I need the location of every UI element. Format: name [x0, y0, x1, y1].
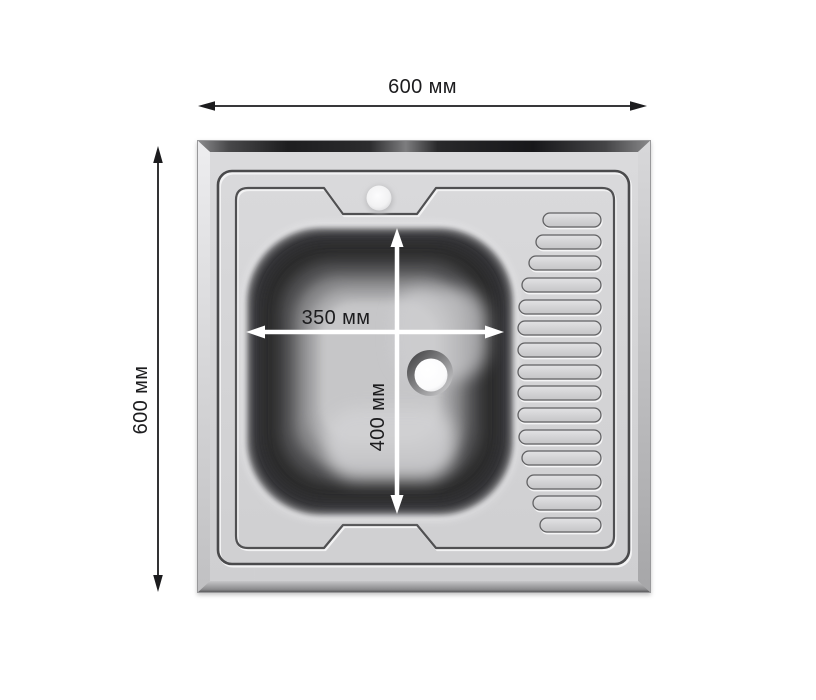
top-bevel-edge [197, 140, 651, 152]
drainboard-slat [527, 475, 602, 491]
left-bevel-edge [197, 140, 210, 593]
drainboard-slat [536, 235, 602, 251]
drainboard-slat [518, 408, 602, 424]
arrowhead-right-icon [630, 101, 647, 111]
drainboard-slat [518, 321, 602, 337]
drainboard-slat [543, 213, 602, 229]
drainboard-slat [518, 343, 602, 359]
overall-width-label: 600 мм [197, 76, 648, 99]
drainboard-slat [519, 430, 602, 446]
right-bevel-edge [638, 140, 651, 593]
drainboard-slat [522, 278, 602, 294]
sink-illustration: 350 мм 400 мм [197, 140, 651, 593]
drainboard-slat [529, 256, 602, 272]
bowl-depth-label: 400 мм [367, 383, 389, 452]
arrowhead-down-icon [153, 575, 163, 592]
drainboard-slat [518, 386, 602, 402]
drain-hole-icon [407, 350, 453, 396]
drainboard-slat [533, 496, 602, 512]
arrowhead-left-icon [198, 101, 215, 111]
drainboard-slat [519, 300, 602, 316]
drainboard-slat [518, 365, 602, 381]
drainboard-slat [522, 451, 602, 467]
drainboard-slat [540, 518, 602, 534]
bottom-bevel-edge [197, 581, 651, 593]
overall-height-arrow [150, 145, 166, 593]
sink-bowl [243, 224, 517, 519]
arrowhead-up-icon [153, 146, 163, 163]
sink-dimension-diagram: 600 мм 600 мм [0, 0, 816, 700]
overall-width-arrow [197, 98, 648, 114]
bowl-width-label: 350 мм [302, 307, 371, 329]
drainboard [518, 213, 602, 534]
